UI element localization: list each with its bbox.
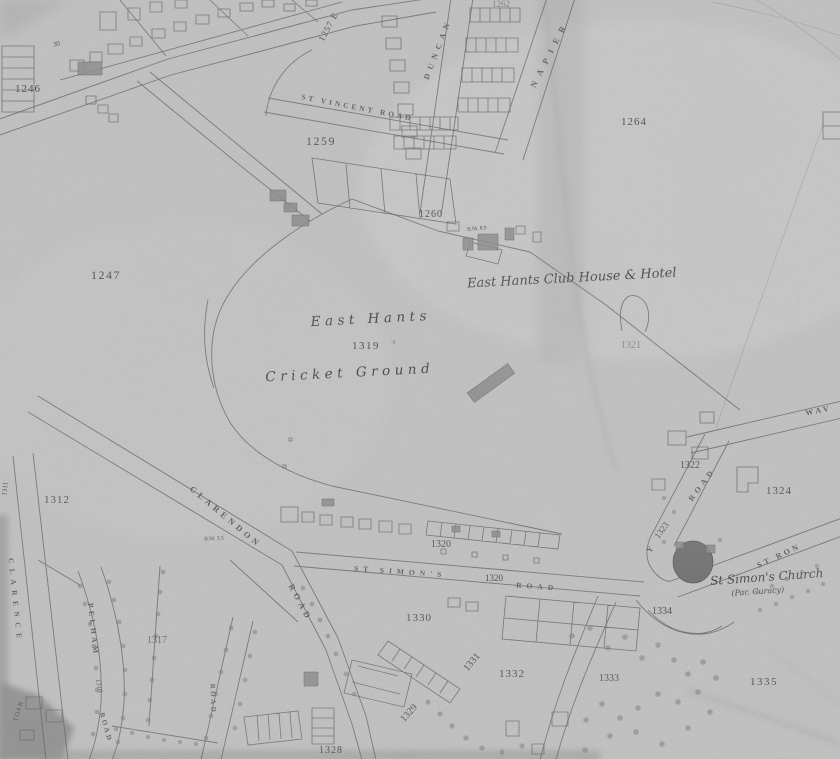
map-canvas: 30 1246 1247 1257 E 1259 1260 1262 1264 … [0, 0, 840, 759]
scan-grain [0, 0, 840, 759]
map-viewport: 30 1246 1247 1257 E 1259 1260 1262 1264 … [0, 0, 840, 759]
